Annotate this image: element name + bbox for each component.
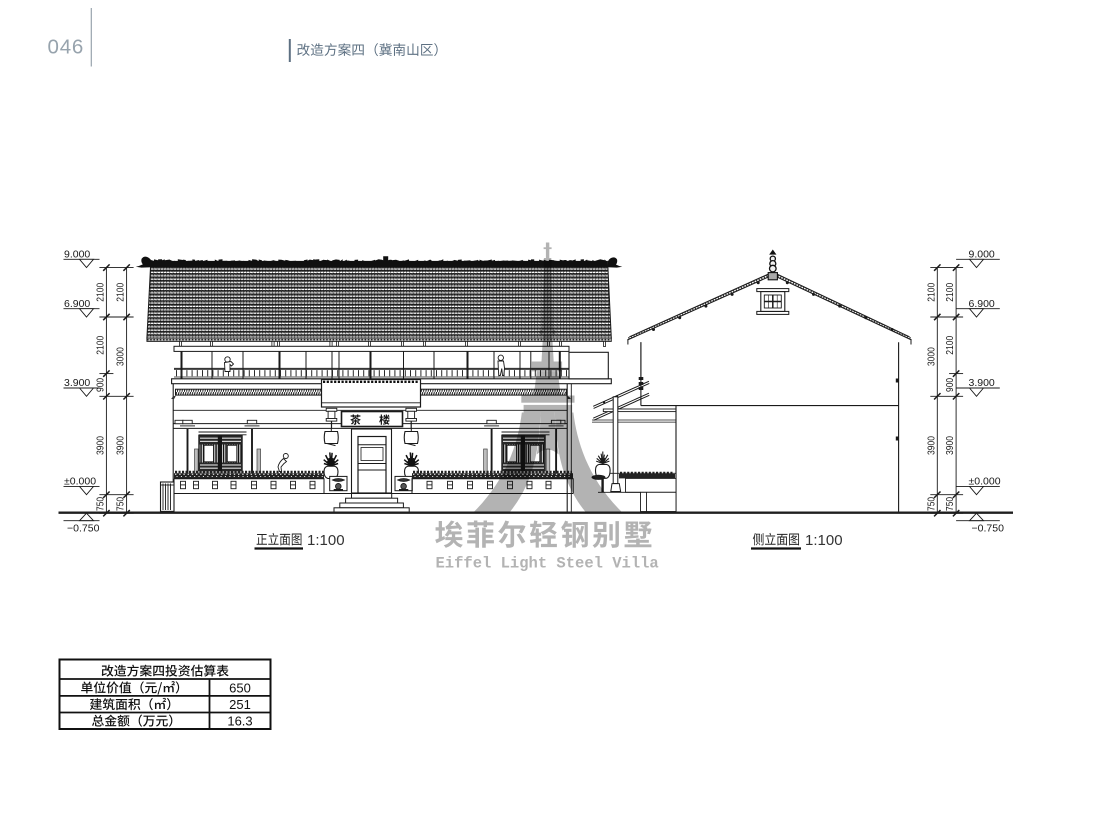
svg-text:1:100: 1:100: [307, 532, 345, 549]
svg-text:3000: 3000: [116, 347, 127, 366]
svg-text:2100: 2100: [116, 282, 127, 301]
svg-text:−0.750: −0.750: [67, 523, 100, 535]
svg-text:650: 650: [229, 681, 251, 696]
svg-text:2100: 2100: [95, 335, 106, 354]
svg-text:Eiffel Light Steel Villa: Eiffel Light Steel Villa: [436, 555, 659, 573]
svg-text:9.000: 9.000: [969, 249, 995, 261]
svg-text:3900: 3900: [926, 436, 937, 455]
svg-text:±0.000: ±0.000: [64, 476, 96, 488]
svg-text:6.900: 6.900: [969, 298, 995, 310]
svg-text:16.3: 16.3: [227, 714, 252, 729]
svg-text:3.900: 3.900: [969, 377, 995, 389]
svg-text:750: 750: [945, 497, 956, 511]
svg-text:750: 750: [926, 497, 937, 511]
svg-text:900: 900: [945, 378, 956, 392]
svg-text:2100: 2100: [926, 282, 937, 301]
svg-text:1:100: 1:100: [805, 532, 843, 549]
svg-text:6.900: 6.900: [64, 298, 90, 310]
svg-text:±0.000: ±0.000: [969, 476, 1001, 488]
svg-text:3900: 3900: [95, 436, 106, 455]
svg-text:750: 750: [116, 497, 127, 511]
svg-text:2100: 2100: [95, 282, 106, 301]
svg-text:3.900: 3.900: [64, 377, 90, 389]
svg-text:046: 046: [48, 36, 85, 59]
svg-text:251: 251: [229, 697, 251, 712]
svg-text:9.000: 9.000: [64, 249, 90, 261]
svg-text:2100: 2100: [945, 282, 956, 301]
svg-text:2100: 2100: [945, 335, 956, 354]
svg-text:3900: 3900: [945, 436, 956, 455]
svg-text:750: 750: [95, 497, 106, 511]
svg-text:3000: 3000: [926, 347, 937, 366]
svg-text:900: 900: [95, 378, 106, 392]
svg-text:3900: 3900: [116, 436, 127, 455]
svg-text:−0.750: −0.750: [972, 523, 1005, 535]
